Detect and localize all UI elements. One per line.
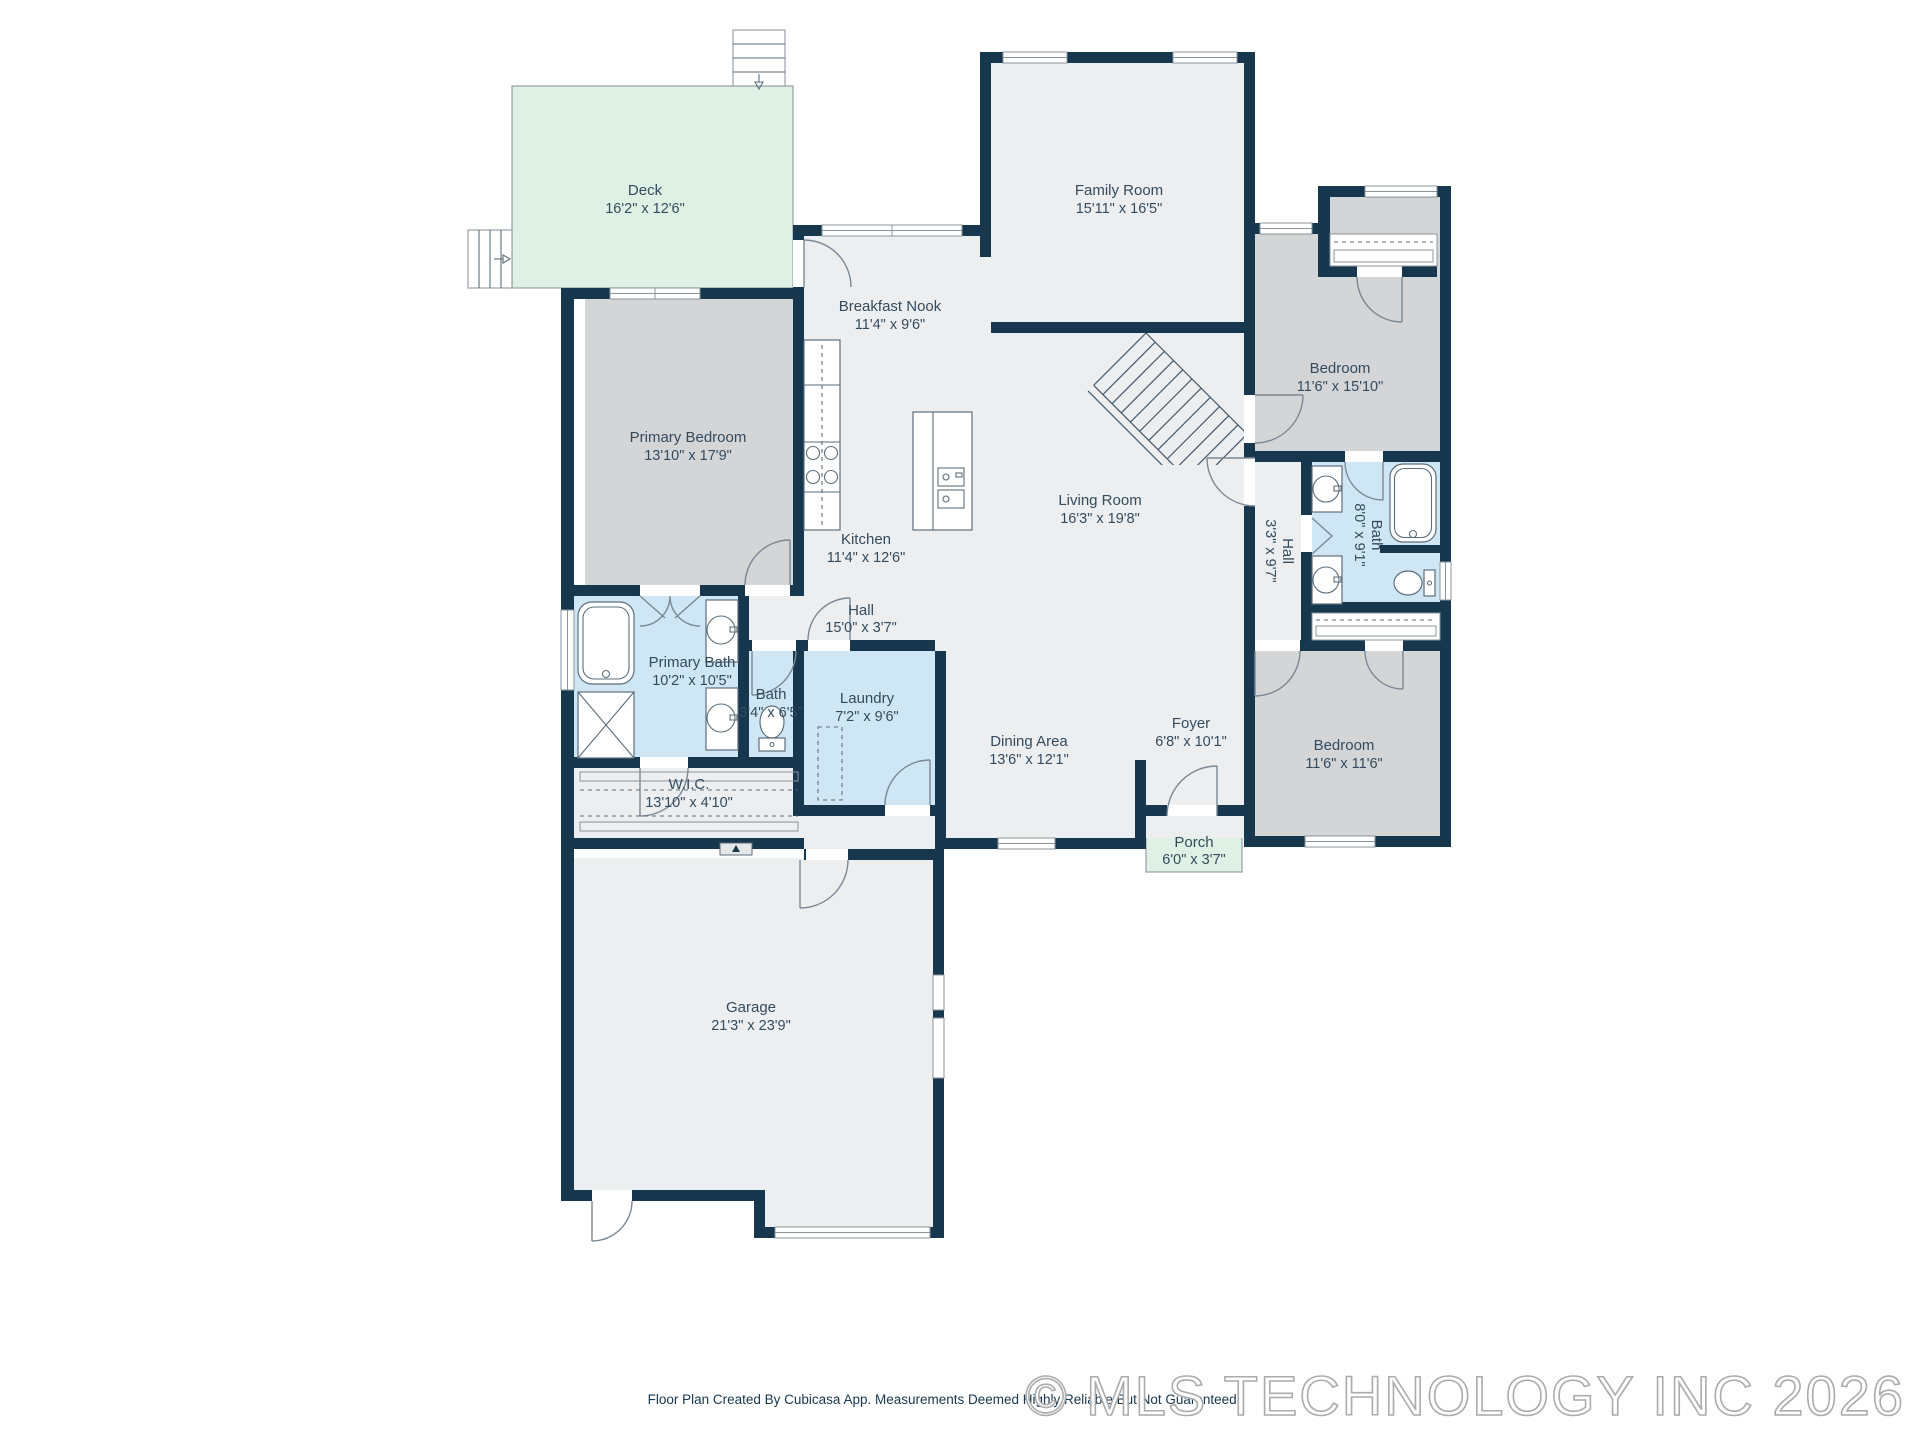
svg-text:13'6" x 12'1": 13'6" x 12'1" xyxy=(989,752,1069,768)
toilet-icon xyxy=(1394,570,1435,596)
deck-stairs-left xyxy=(468,230,512,288)
label-hall-main: Hall xyxy=(848,602,874,619)
label-garage: Garage xyxy=(726,999,776,1016)
label-breakfast-nook: Breakfast Nook xyxy=(839,298,942,315)
svg-text:15'11" x 16'5": 15'11" x 16'5" xyxy=(1076,201,1163,217)
window xyxy=(1440,562,1451,600)
garage-opening xyxy=(933,1018,944,1078)
sink-icon xyxy=(1312,556,1342,604)
kitchen-island xyxy=(913,412,972,530)
svg-text:11'4" x 12'6": 11'4" x 12'6" xyxy=(827,550,905,566)
window xyxy=(1003,52,1067,63)
svg-text:13'10" x 17'9": 13'10" x 17'9" xyxy=(644,448,732,464)
svg-text:16'3" x 19'8": 16'3" x 19'8" xyxy=(1060,511,1140,527)
label-primary-bath: Primary Bath xyxy=(649,654,736,671)
svg-text:15'0" x 3'7": 15'0" x 3'7" xyxy=(825,620,896,636)
svg-text:3'3" x 9'7": 3'3" x 9'7" xyxy=(1262,519,1278,582)
door-garage-side xyxy=(592,1201,632,1241)
attic-access-marker xyxy=(720,843,752,855)
label-bath-right: Bath xyxy=(1368,520,1385,551)
label-primary-bedroom: Primary Bedroom xyxy=(630,429,747,446)
window xyxy=(1173,52,1237,63)
label-hall-right: Hall xyxy=(1279,538,1296,564)
window xyxy=(998,838,1055,849)
label-kitchen: Kitchen xyxy=(841,531,891,548)
svg-text:10'2" x 10'5": 10'2" x 10'5" xyxy=(652,673,732,689)
floor-plan: Deck 16'2" x 12'6" Family Room 15'11" x … xyxy=(0,0,1920,1440)
label-bedroom-tr: Bedroom xyxy=(1310,360,1371,377)
sink-icon xyxy=(1312,466,1342,512)
sink-icon xyxy=(706,600,738,662)
svg-text:16'2" x 12'6": 16'2" x 12'6" xyxy=(605,201,685,217)
label-living-room: Living Room xyxy=(1058,492,1141,509)
svg-text:11'4" x 9'6": 11'4" x 9'6" xyxy=(855,317,925,333)
garage-opening xyxy=(933,975,944,1010)
window xyxy=(610,288,700,299)
svg-text:6'8" x 10'1": 6'8" x 10'1" xyxy=(1155,734,1226,750)
label-bedroom-br: Bedroom xyxy=(1314,737,1375,754)
svg-text:8'0" x 9'1": 8'0" x 9'1" xyxy=(1351,503,1367,566)
svg-text:11'6" x 11'6": 11'6" x 11'6" xyxy=(1305,756,1382,772)
window xyxy=(822,225,962,236)
garage-door xyxy=(775,1227,930,1238)
deck-stairs-top xyxy=(733,30,785,89)
watermark: © MLS TECHNOLOGY INC 2026 xyxy=(1025,1364,1905,1427)
shower-icon xyxy=(578,692,634,758)
closet-bedroom-tr xyxy=(1330,234,1437,266)
label-deck: Deck xyxy=(628,182,663,199)
closet-hall-right xyxy=(1312,613,1440,640)
svg-text:7'2" x 9'6": 7'2" x 9'6" xyxy=(835,709,898,725)
window xyxy=(1260,223,1312,234)
label-wic: W.I.C. xyxy=(669,776,710,793)
label-laundry: Laundry xyxy=(840,690,895,707)
svg-text:13'10" x 4'10": 13'10" x 4'10" xyxy=(645,795,733,811)
svg-text:11'6" x 15'10": 11'6" x 15'10" xyxy=(1297,379,1384,395)
svg-text:6'0" x 3'7": 6'0" x 3'7" xyxy=(1162,852,1225,868)
bathtub-icon xyxy=(1390,464,1436,542)
window xyxy=(1305,836,1375,847)
label-bath-small: Bath xyxy=(756,686,787,703)
label-porch: Porch xyxy=(1174,834,1213,851)
sink-icon xyxy=(706,688,738,750)
bathtub-icon xyxy=(578,602,634,684)
svg-text:21'3" x 23'9": 21'3" x 23'9" xyxy=(711,1018,791,1034)
laundry-floor xyxy=(804,651,935,805)
kitchen-cabinets xyxy=(804,340,840,530)
label-foyer: Foyer xyxy=(1172,715,1210,732)
window xyxy=(1365,186,1437,197)
svg-text:3'4" x 6'5": 3'4" x 6'5" xyxy=(739,705,802,721)
label-dining-area: Dining Area xyxy=(990,733,1068,750)
window xyxy=(561,610,574,690)
label-family-room: Family Room xyxy=(1075,182,1163,199)
